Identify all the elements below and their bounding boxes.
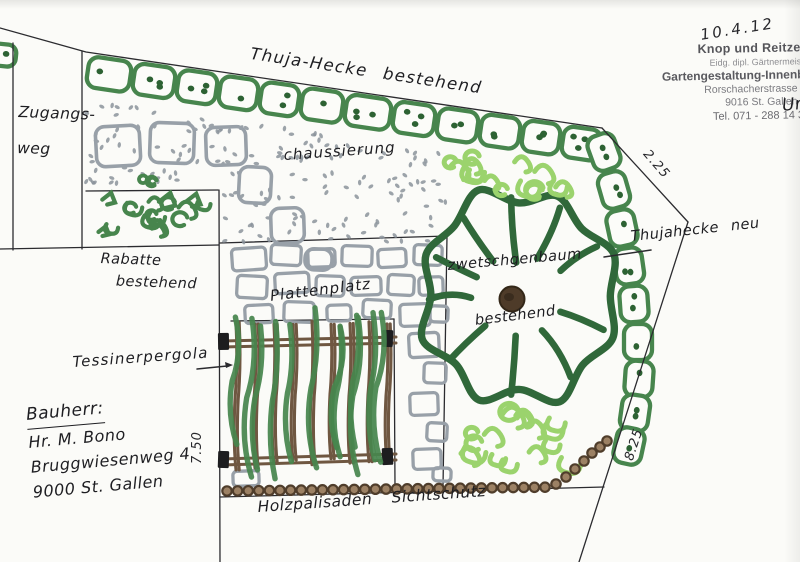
planting-bed-top: [444, 151, 572, 199]
planting-bed-bottom: [461, 403, 581, 473]
label-zugangsweg: Zugangs- weg: [16, 94, 96, 169]
label-zugangsweg-line1: Zugangs-: [18, 94, 96, 133]
label-rabatte-line2: bestehend: [115, 271, 197, 296]
handwritten-note: Un: [781, 93, 800, 115]
label-rabatte: Rabatte bestehend: [99, 248, 198, 295]
scanned-garden-plan: { "labels": { "thuja": "Thuja-Hecke best…: [0, 0, 800, 562]
label-rabatte-line1: Rabatte: [100, 248, 198, 273]
client-block: Bauherr: Hr. M. Bono Bruggwiesenweg 4 90…: [25, 388, 193, 505]
company-stamp: Knop und Reitze AG Eidg. dipl. Gärtnerme…: [654, 40, 800, 125]
dimension-7-50: 7.50: [190, 431, 205, 464]
tessiner-pergola: [218, 308, 396, 479]
stamp-phone: Tel. 071 - 288 14 37: [655, 108, 800, 125]
zwetschgenbaum-tree: [421, 189, 615, 402]
scan-edge-top: [0, 0, 800, 9]
label-zugangsweg-line2: weg: [16, 130, 94, 169]
thuja-hedge-right: [585, 130, 655, 466]
